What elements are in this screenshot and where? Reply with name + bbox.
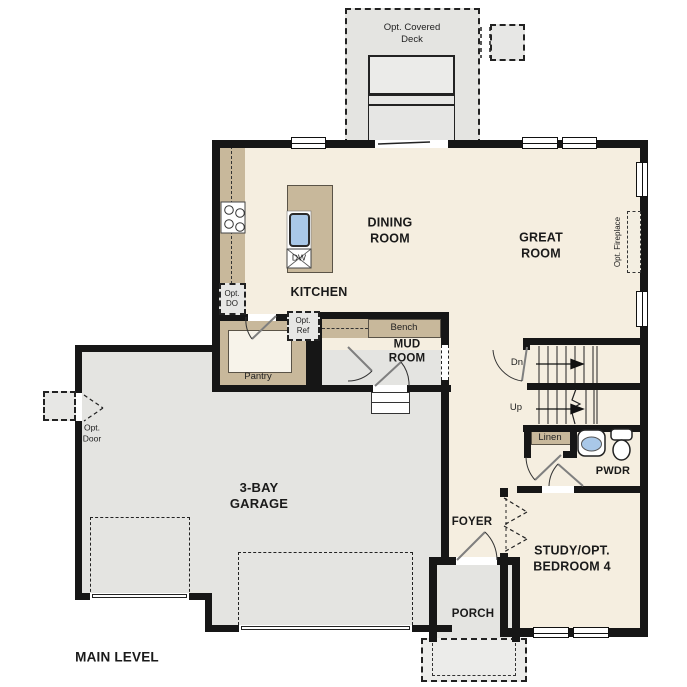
opt-fireplace-label: Opt. Fireplace xyxy=(613,217,623,267)
stairs-up-arrow xyxy=(536,405,583,414)
study-label: STUDY/OPT. BEDROOM 4 xyxy=(533,543,611,574)
great-room-label: GREAT ROOM xyxy=(519,230,563,261)
stairs-down-arrow xyxy=(536,360,583,369)
garage-label: 3-BAY GARAGE xyxy=(230,480,288,513)
door-powder xyxy=(549,464,583,486)
dw-label: DW xyxy=(292,253,306,264)
door-pantry xyxy=(246,316,276,339)
door-mud-closet xyxy=(348,347,372,381)
deck-label: Opt. Covered Deck xyxy=(384,22,441,46)
kitchen-sink xyxy=(287,211,311,249)
door-front xyxy=(457,532,497,560)
powder-sink xyxy=(578,430,605,456)
floor-plan: Opt. Covered Deck DINING ROOM GREAT ROOM… xyxy=(0,0,687,687)
opt-door-label: Opt. Door xyxy=(83,422,101,443)
plan-linework xyxy=(0,0,687,687)
opt-ref-label: Opt. Ref xyxy=(295,316,310,336)
stairs-up-label: Up xyxy=(510,402,522,414)
plan-title: MAIN LEVEL xyxy=(75,650,159,667)
dining-room-label: DINING ROOM xyxy=(368,215,413,246)
study-optional-double-doors xyxy=(504,498,527,552)
bench-label: Bench xyxy=(391,322,418,334)
foyer-label: FOYER xyxy=(452,515,493,529)
opt-do-label: Opt. DO xyxy=(224,289,239,309)
deck-connector xyxy=(481,27,490,58)
kitchen-label: KITCHEN xyxy=(291,285,348,301)
optional-door-swing xyxy=(84,395,103,421)
stairs-down-label: Dn xyxy=(511,357,523,369)
toilet xyxy=(611,429,632,460)
stairs-up-run xyxy=(539,390,597,424)
mud-room-label: MUD ROOM xyxy=(389,338,426,367)
porch-label: PORCH xyxy=(452,607,495,621)
linen-label: Linen xyxy=(538,432,561,444)
pantry-label: Pantry xyxy=(244,371,271,383)
powder-label: PWDR xyxy=(596,465,630,479)
range-cooktop xyxy=(221,202,245,233)
deck-slider-panel xyxy=(378,142,430,144)
